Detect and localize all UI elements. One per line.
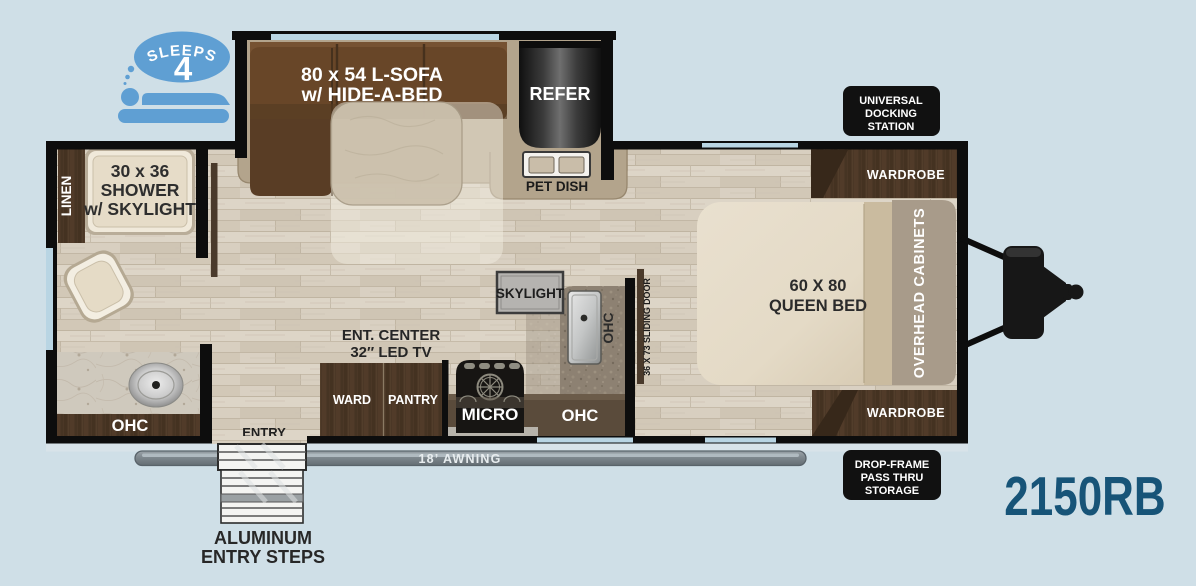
- svg-text:OHC: OHC: [600, 312, 616, 343]
- svg-text:60 X 80: 60 X 80: [790, 277, 847, 295]
- svg-text:MICRO: MICRO: [462, 405, 519, 424]
- svg-text:30 x 36: 30 x 36: [111, 161, 170, 181]
- svg-text:PANTRY: PANTRY: [388, 393, 439, 407]
- svg-text:36 X 73 SLIDING DOOR: 36 X 73 SLIDING DOOR: [642, 278, 652, 376]
- svg-text:32″ LED TV: 32″ LED TV: [350, 344, 431, 361]
- svg-text:DROP-FRAME: DROP-FRAME: [855, 459, 930, 471]
- svg-text:DOCKING: DOCKING: [865, 108, 917, 120]
- svg-text:OHC: OHC: [112, 417, 149, 435]
- svg-text:QUEEN BED: QUEEN BED: [769, 297, 867, 315]
- svg-text:SHOWER: SHOWER: [101, 180, 180, 200]
- svg-text:UNIVERSAL: UNIVERSAL: [859, 95, 923, 107]
- svg-text:PASS THRU: PASS THRU: [861, 472, 924, 484]
- svg-text:w/ HIDE-A-BED: w/ HIDE-A-BED: [301, 84, 443, 106]
- svg-text:OHC: OHC: [562, 407, 599, 425]
- svg-text:WARD: WARD: [333, 393, 371, 407]
- svg-text:2150RB: 2150RB: [1004, 465, 1165, 527]
- svg-text:WARDROBE: WARDROBE: [867, 406, 945, 420]
- svg-text:STORAGE: STORAGE: [865, 485, 919, 497]
- svg-text:REFER: REFER: [529, 84, 590, 104]
- svg-text:LINEN: LINEN: [59, 176, 74, 217]
- svg-text:PET DISH: PET DISH: [526, 179, 588, 194]
- svg-text:SKYLIGHT: SKYLIGHT: [496, 286, 565, 301]
- svg-text:ENT. CENTER: ENT. CENTER: [342, 327, 441, 344]
- svg-text:ENTRY STEPS: ENTRY STEPS: [201, 547, 325, 567]
- svg-text:4: 4: [174, 50, 193, 87]
- svg-text:OVERHEAD CABINETS: OVERHEAD CABINETS: [912, 208, 928, 379]
- svg-text:80 x 54 L-SOFA: 80 x 54 L-SOFA: [301, 64, 443, 86]
- svg-text:WARDROBE: WARDROBE: [867, 168, 945, 182]
- svg-text:ALUMINUM: ALUMINUM: [214, 528, 312, 548]
- svg-text:STATION: STATION: [868, 121, 915, 133]
- svg-text:w/ SKYLIGHT: w/ SKYLIGHT: [83, 199, 196, 219]
- svg-text:18’ AWNING: 18’ AWNING: [418, 452, 501, 466]
